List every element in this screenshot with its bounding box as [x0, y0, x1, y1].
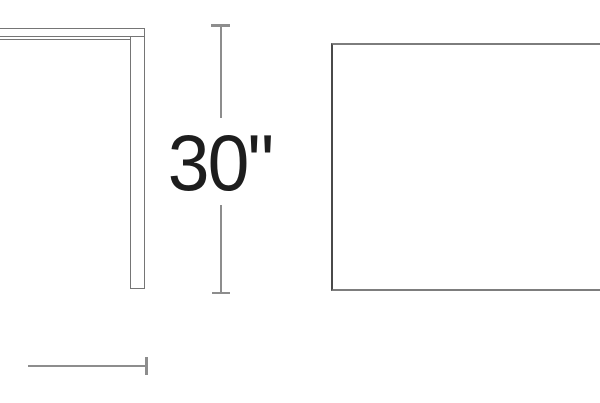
- height-dimension-label: 30": [149, 118, 292, 208]
- dimension-drawing-canvas: 30": [0, 0, 600, 403]
- tabletop-side-view: [0, 28, 145, 37]
- tabletop-plan-view: [331, 43, 600, 292]
- height-dimension-line-lower: [220, 205, 222, 292]
- tabletop-apron-line: [0, 39, 135, 41]
- height-dimension-line-upper: [220, 26, 222, 118]
- depth-dimension-right-tick: [145, 357, 148, 375]
- height-dimension-bottom-tick: [212, 292, 230, 295]
- table-leg-side-view: [130, 36, 145, 289]
- depth-dimension-line: [28, 365, 147, 367]
